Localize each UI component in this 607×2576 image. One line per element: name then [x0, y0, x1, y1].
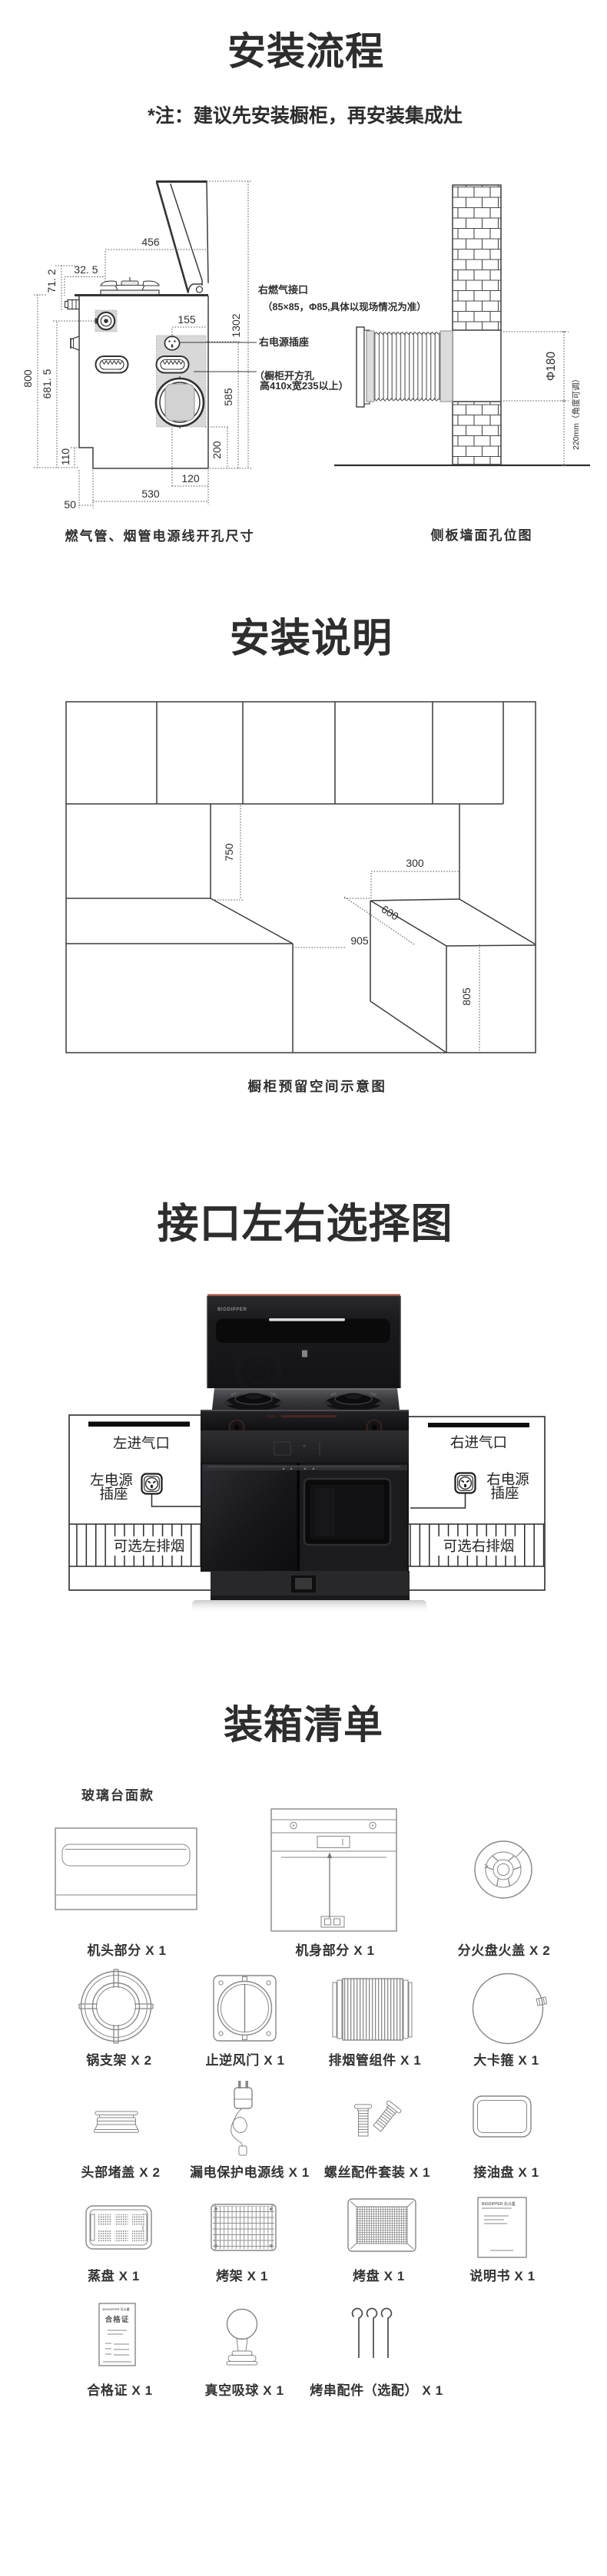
svg-text:机头部分 X 1: 机头部分 X 1 — [87, 1943, 166, 1958]
svg-text:玻璃台面款: 玻璃台面款 — [81, 1787, 154, 1803]
svg-text:右燃气接口: 右燃气接口 — [257, 284, 308, 296]
svg-text:32. 5: 32. 5 — [74, 263, 98, 276]
svg-text:锅支架 X 2: 锅支架 X 2 — [86, 2052, 151, 2068]
svg-text:漏电保护电源线 X 1: 漏电保护电源线 X 1 — [190, 2164, 310, 2180]
svg-text:530: 530 — [141, 488, 160, 500]
svg-text:可选左排烟: 可选左排烟 — [114, 1538, 185, 1554]
svg-text:分火盘火盖 X 2: 分火盘火盖 X 2 — [458, 1943, 551, 1958]
svg-text:300: 300 — [406, 857, 424, 869]
svg-text:可选右排烟: 可选右排烟 — [443, 1538, 515, 1554]
svg-text:橱柜预留空间示意图: 橱柜预留空间示意图 — [248, 1079, 387, 1094]
svg-text:1302: 1302 — [230, 313, 242, 337]
svg-text:排烟管组件 X 1: 排烟管组件 X 1 — [329, 2052, 422, 2068]
svg-text:合格证 X 1: 合格证 X 1 — [87, 2383, 152, 2398]
svg-text:110: 110 — [59, 448, 71, 466]
svg-text:燃气管、烟管电源线开孔尺寸: 燃气管、烟管电源线开孔尺寸 — [65, 528, 255, 544]
svg-text:BIGDIPPER 北斗星: BIGDIPPER 北斗星 — [482, 2201, 516, 2207]
svg-text:71. 2: 71. 2 — [45, 269, 58, 293]
svg-text:烤串配件（选配） X 1: 烤串配件（选配） X 1 — [310, 2383, 443, 2398]
svg-text:800: 800 — [22, 369, 34, 388]
svg-text:左进气口: 左进气口 — [113, 1435, 170, 1451]
svg-text:220mm（角度可调）: 220mm（角度可调） — [571, 375, 581, 450]
svg-text:插座: 插座 — [99, 1486, 128, 1502]
svg-text:止逆风门 X 1: 止逆风门 X 1 — [205, 2052, 284, 2068]
svg-text:155: 155 — [177, 313, 196, 326]
svg-text:BIGDIPPER: BIGDIPPER — [217, 1308, 247, 1312]
svg-text:585: 585 — [222, 388, 234, 406]
svg-text:456: 456 — [141, 236, 160, 248]
svg-text:120: 120 — [181, 472, 200, 484]
svg-text:接油盘 X 1: 接油盘 X 1 — [473, 2164, 539, 2180]
svg-text:Φ180: Φ180 — [545, 352, 558, 382]
svg-text:右进气口: 右进气口 — [450, 1434, 507, 1450]
svg-text:蒸盘 X 1: 蒸盘 X 1 — [88, 2268, 140, 2283]
svg-text:螺丝配件套装 X 1: 螺丝配件套装 X 1 — [324, 2164, 430, 2180]
svg-text:600: 600 — [380, 903, 401, 923]
svg-text:烤架 X 1: 烤架 X 1 — [216, 2268, 268, 2283]
svg-text:681. 5: 681. 5 — [41, 369, 53, 398]
svg-text:机身部分 X 1: 机身部分 X 1 — [295, 1943, 374, 1958]
svg-text:805: 805 — [460, 987, 473, 1006]
svg-text:大卡箍 X 1: 大卡箍 X 1 — [473, 2052, 539, 2068]
svg-text:头部堵盖 X 2: 头部堵盖 X 2 — [81, 2164, 160, 2180]
svg-text:说明书 X 1: 说明书 X 1 — [469, 2268, 535, 2283]
svg-text:侧板墙面孔位图: 侧板墙面孔位图 — [431, 527, 533, 543]
svg-text:右电源插座: 右电源插座 — [258, 336, 309, 348]
svg-text:200: 200 — [211, 441, 223, 459]
svg-text:真空吸球 X 1: 真空吸球 X 1 — [204, 2383, 284, 2398]
svg-text:高410x宽235以上）: 高410x宽235以上） — [260, 380, 349, 392]
svg-text:50: 50 — [64, 498, 76, 511]
svg-text:插座: 插座 — [490, 1485, 519, 1501]
svg-text:750: 750 — [223, 843, 235, 861]
svg-text:905: 905 — [350, 934, 369, 947]
svg-text:烤盘 X 1: 烤盘 X 1 — [353, 2268, 405, 2283]
svg-text:BIGDIPPER 北斗星: BIGDIPPER 北斗星 — [103, 2306, 130, 2311]
svg-text:合格证: 合格证 — [105, 2315, 130, 2324]
svg-text:（85×85，Φ85,具体以现场情况为准）: （85×85，Φ85,具体以现场情况为准） — [263, 301, 426, 312]
